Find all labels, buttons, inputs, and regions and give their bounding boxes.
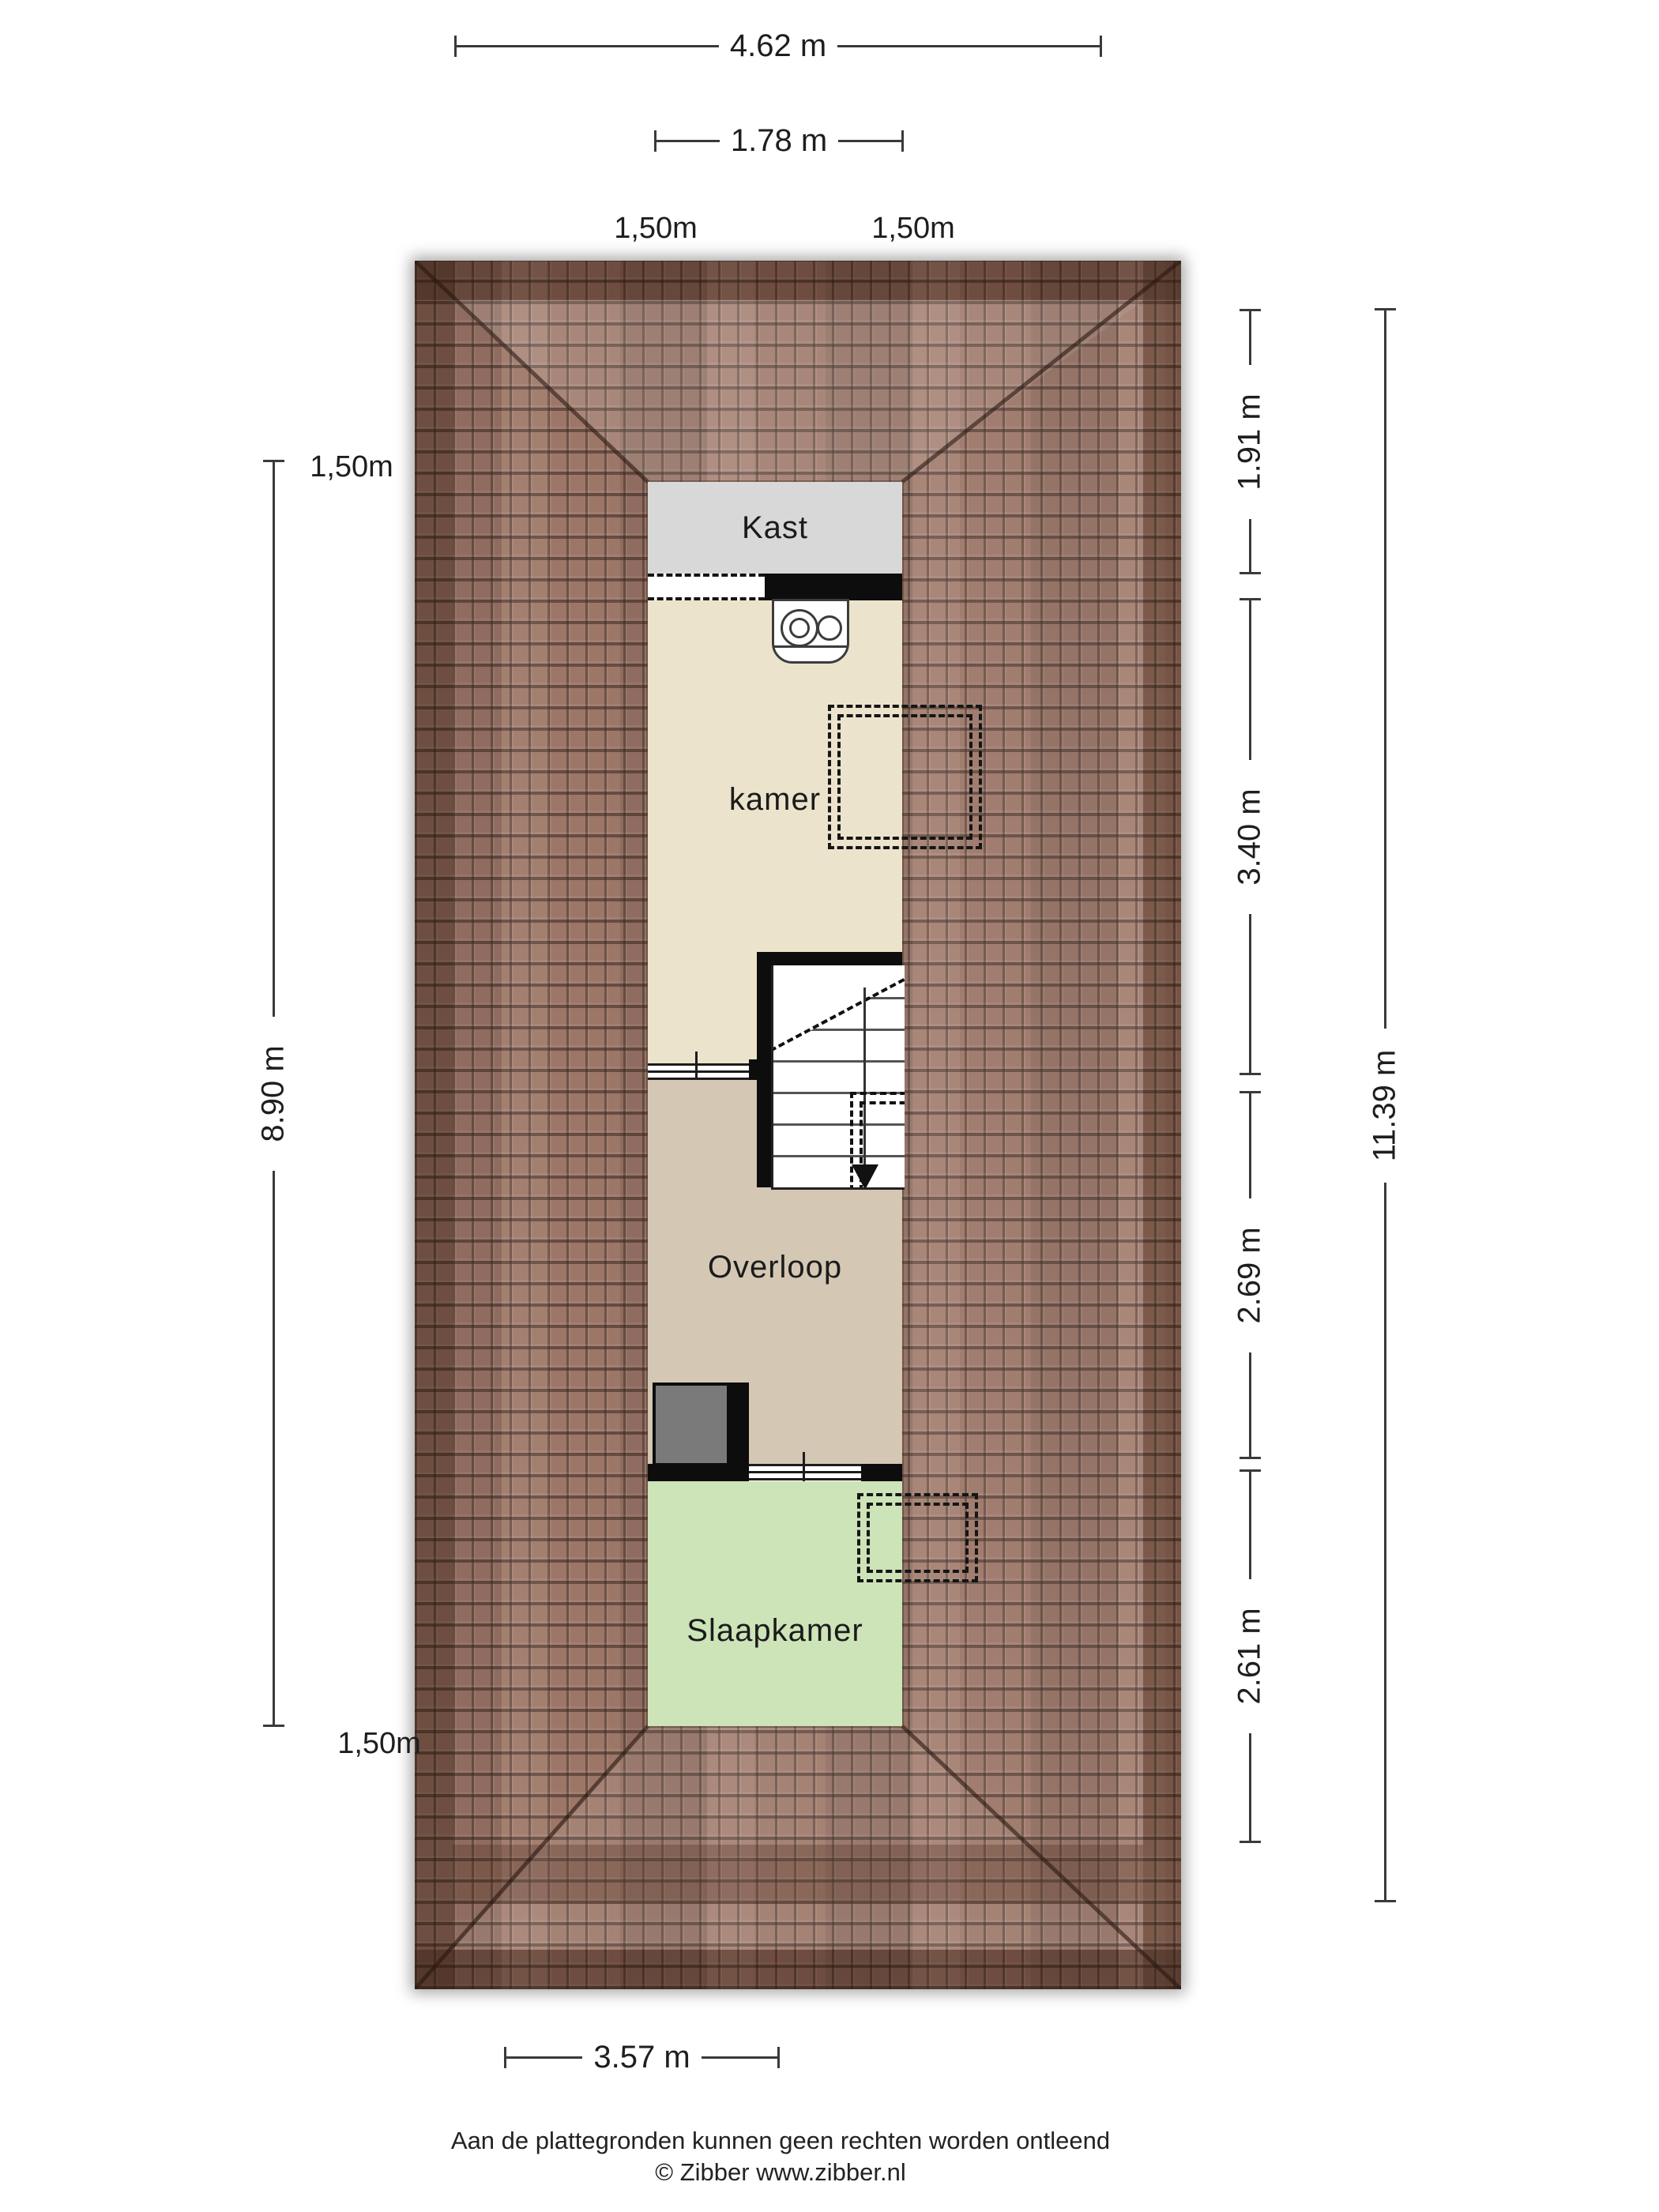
wall-overloop-slaapkamer-right: [861, 1464, 902, 1481]
dim-top-total: 4.62 m: [454, 30, 1102, 62]
boiler-knob: [817, 615, 842, 641]
room-label-kast: Kast: [648, 510, 902, 546]
lowwall-symbol-kamer-overloop: [648, 1063, 749, 1080]
boiler-line: [774, 645, 847, 648]
lowwall-symbol-overloop-slaapkamer: [749, 1464, 861, 1481]
staircase: [771, 965, 905, 1190]
stair-tread: [773, 1060, 905, 1063]
room-label-slaapkamer: Slaapkamer: [648, 1613, 902, 1649]
dim-left-height: 8.90 m: [258, 460, 289, 1727]
shaft-wall-right: [730, 1382, 749, 1466]
stair-wall-left: [757, 952, 771, 1187]
dim-label: 1.91 m: [1232, 393, 1268, 490]
shaft-block: [653, 1382, 730, 1466]
wall-overloop-slaapkamer-left: [648, 1464, 749, 1481]
dim-label: 4.62 m: [730, 28, 826, 64]
dim-right-segment-3: 2.69 m: [1234, 1091, 1266, 1459]
clearance-label-top-left: 1,50m: [614, 212, 698, 246]
roof-window-dashed-slaapkamer: [857, 1493, 978, 1582]
dashed-lowwall-symbol: [648, 574, 765, 600]
stair-opening-dashed-inner: [860, 1101, 905, 1190]
dim-right-total: 11.39 m: [1369, 308, 1401, 1902]
roof-window-dashed-kamer: [828, 705, 982, 849]
boiler-dial-inner: [789, 618, 810, 638]
disclaimer-text: Aan de plattegronden kunnen geen rechten…: [307, 2127, 1255, 2155]
dim-label: 11.39 m: [1367, 1049, 1403, 1161]
dim-label: 8.90 m: [256, 1045, 292, 1142]
dim-right-segment-1: 1.91 m: [1234, 309, 1266, 574]
roof-window-dashed-kamer-inner: [837, 714, 972, 840]
dim-label: 2.61 m: [1232, 1608, 1268, 1704]
dim-top-dormer: 1.78 m: [654, 125, 904, 156]
floorplan-page: Kast kamer Overloop: [0, 0, 1659, 2212]
wall-below-kast: [765, 574, 902, 600]
dim-right-segment-4: 2.61 m: [1234, 1469, 1266, 1843]
clearance-label-left-bottom: 1,50m: [337, 1727, 421, 1761]
roof-window-dashed-slaapkamer-inner: [867, 1503, 969, 1573]
dim-bottom-width: 3.57 m: [504, 2041, 780, 2073]
dim-label: 3.57 m: [593, 2040, 690, 2075]
dim-label: 1.78 m: [731, 123, 827, 159]
dim-right-segment-2: 3.40 m: [1234, 598, 1266, 1075]
dim-label: 2.69 m: [1232, 1227, 1268, 1323]
copyright-text: © Zibber www.zibber.nl: [307, 2158, 1255, 2187]
boiler-icon: [772, 599, 849, 664]
room-label-overloop: Overloop: [648, 1250, 902, 1285]
dim-label: 3.40 m: [1232, 788, 1268, 885]
clearance-label-top-right: 1,50m: [871, 212, 955, 246]
clearance-label-left-top: 1,50m: [310, 450, 393, 484]
stair-wall-top: [757, 952, 902, 965]
stair-opening-dashed: [850, 1092, 905, 1190]
